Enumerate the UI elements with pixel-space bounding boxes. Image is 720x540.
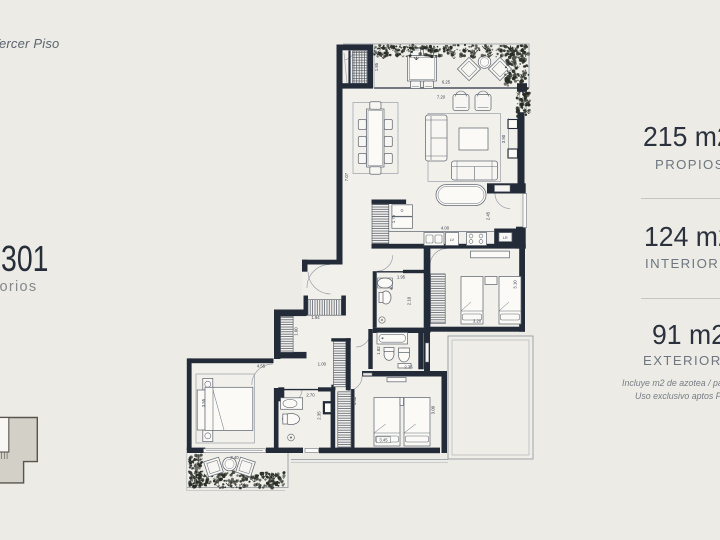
svg-text:1.85: 1.85 bbox=[374, 62, 379, 71]
svg-text:2.10: 2.10 bbox=[407, 296, 412, 305]
svg-text:1.82: 1.82 bbox=[376, 346, 381, 355]
svg-text:1.00: 1.00 bbox=[293, 327, 298, 336]
svg-text:1.94: 1.94 bbox=[311, 315, 320, 320]
svg-text:4.40: 4.40 bbox=[352, 396, 357, 405]
svg-text:1.75: 1.75 bbox=[391, 214, 396, 223]
svg-text:3.20: 3.20 bbox=[473, 319, 482, 324]
svg-text:7.20: 7.20 bbox=[437, 95, 446, 100]
svg-text:2.35: 2.35 bbox=[316, 411, 321, 420]
svg-text:1.95: 1.95 bbox=[397, 275, 406, 280]
svg-text:3.40: 3.40 bbox=[230, 455, 239, 460]
svg-text:4.00: 4.00 bbox=[441, 226, 450, 231]
svg-text:2.45: 2.45 bbox=[486, 211, 491, 220]
svg-text:1.00: 1.00 bbox=[318, 361, 327, 366]
svg-text:LV: LV bbox=[450, 238, 455, 242]
svg-text:4.55: 4.55 bbox=[257, 363, 266, 368]
svg-text:LR: LR bbox=[503, 236, 508, 240]
svg-text:3.55: 3.55 bbox=[201, 398, 206, 407]
svg-text:3.45: 3.45 bbox=[379, 438, 388, 443]
svg-text:7.07: 7.07 bbox=[344, 172, 349, 181]
svg-text:6.25: 6.25 bbox=[442, 80, 451, 85]
svg-text:3.90: 3.90 bbox=[501, 134, 506, 143]
svg-text:3.00: 3.00 bbox=[431, 405, 436, 414]
svg-text:2.35: 2.35 bbox=[404, 365, 413, 370]
svg-text:3.10: 3.10 bbox=[512, 280, 517, 289]
svg-text:2.70: 2.70 bbox=[306, 392, 315, 397]
